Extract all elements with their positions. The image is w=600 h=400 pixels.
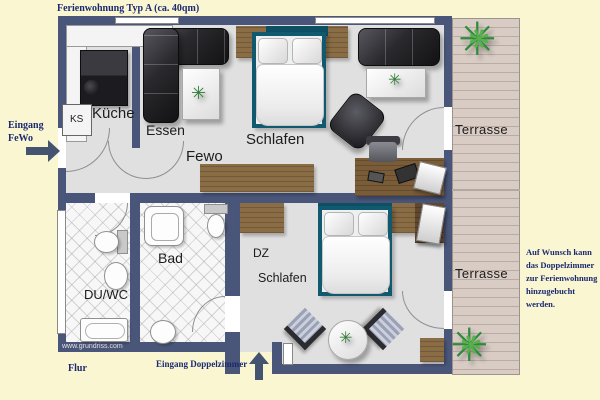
toilet-tank	[204, 204, 228, 214]
room-label-bedroom: Schlafen	[246, 131, 304, 148]
wall-post	[272, 342, 282, 374]
entrance-fewo-line1: Eingang	[8, 119, 44, 132]
pillow	[324, 212, 354, 236]
shower	[144, 206, 184, 246]
room-label-dz-2: Schlafen	[258, 271, 307, 285]
pillow	[258, 38, 288, 64]
note-text: Auf Wunsch kann das Doppelzimmer zur Fer…	[526, 246, 597, 311]
room-label-bad: Bad	[158, 250, 183, 266]
hallway-label: Flur	[68, 363, 87, 374]
room-label-terrace-bottom: Terrasse	[455, 266, 508, 281]
watermark: www.grundriss.com	[62, 343, 123, 350]
pillow	[292, 38, 322, 64]
room-label-terrace-top: Terrasse	[455, 122, 508, 137]
duvet	[322, 236, 390, 294]
window	[315, 17, 435, 24]
desk-chair	[369, 142, 397, 162]
duvet	[256, 64, 324, 126]
window	[115, 17, 179, 24]
door-opening-duwc	[95, 193, 130, 203]
door-opening-terrace-top	[444, 107, 452, 150]
sideboard	[240, 203, 284, 233]
fridge-box: KS	[62, 104, 92, 136]
wall	[58, 193, 95, 203]
bathtub	[80, 318, 128, 342]
note-line: das Doppelzimmer	[526, 259, 597, 272]
room-label-kitchen: Küche	[92, 105, 135, 122]
terrace-seam	[452, 189, 520, 191]
kitchen-sink	[84, 80, 99, 95]
door-leaf-dz	[283, 343, 293, 365]
kitchen-appliance	[80, 50, 128, 106]
room-label-dining: Essen	[146, 122, 185, 138]
door-opening-bad	[225, 296, 240, 332]
toilet	[207, 214, 225, 238]
wall	[282, 364, 452, 374]
plant-icon: ✳	[339, 330, 352, 347]
plant-icon: ✳	[388, 72, 401, 89]
entrance-dz-label: Eingang Doppelzimmer	[156, 359, 247, 369]
shower-inner	[151, 213, 179, 241]
arrow-up-icon	[249, 352, 269, 380]
sideboard	[200, 164, 314, 192]
pillow	[358, 212, 388, 236]
window	[57, 210, 66, 334]
corner-sofa	[143, 28, 179, 123]
room-label-duwc: DU/WC	[84, 287, 128, 302]
sink	[104, 262, 128, 290]
sink	[150, 320, 176, 344]
plant-icon: ✳	[191, 83, 206, 103]
plan-title: Ferienwohnung Typ A (ca. 40qm)	[57, 3, 199, 14]
arrow-right-icon	[26, 140, 60, 162]
floorplan: Ferienwohnung Typ A (ca. 40qm) www.grund…	[0, 0, 600, 400]
wall	[225, 203, 240, 296]
wall	[130, 203, 140, 342]
sofa	[358, 28, 440, 66]
doormat	[420, 338, 444, 362]
fridge-label: KS	[70, 114, 83, 125]
note-line: Auf Wunsch kann	[526, 246, 597, 259]
toilet	[94, 231, 119, 253]
note-line: hinzugebucht	[526, 285, 597, 298]
room-label-dz-1: DZ	[253, 246, 269, 260]
wall	[444, 16, 452, 107]
bathtub-inner	[85, 323, 125, 339]
room-label-hall: Fewo	[186, 148, 223, 165]
note-line: werden.	[526, 298, 597, 311]
note-line: zur Ferienwohnung	[526, 272, 597, 285]
